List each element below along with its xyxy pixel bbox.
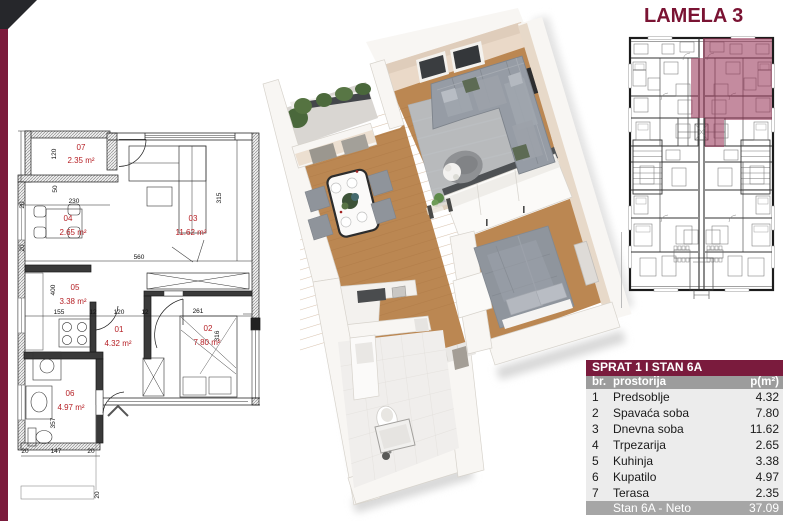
svg-text:01: 01	[115, 325, 124, 334]
svg-text:7.80 m²: 7.80 m²	[193, 338, 220, 347]
svg-text:12: 12	[141, 309, 149, 316]
svg-text:261: 261	[193, 308, 204, 315]
svg-text:2.35 m²: 2.35 m²	[67, 156, 94, 165]
svg-text:2.65 m²: 2.65 m²	[59, 228, 86, 237]
svg-text:3.38 m²: 3.38 m²	[59, 297, 86, 306]
svg-text:155: 155	[54, 309, 65, 316]
svg-text:230: 230	[69, 198, 80, 205]
svg-text:03: 03	[189, 214, 198, 223]
svg-text:04: 04	[64, 214, 73, 223]
svg-text:02: 02	[204, 324, 213, 333]
svg-text:20: 20	[19, 244, 26, 252]
svg-text:560: 560	[134, 254, 145, 261]
svg-text:120: 120	[114, 309, 125, 316]
svg-text:20: 20	[21, 448, 29, 455]
svg-text:315: 315	[216, 192, 223, 203]
svg-text:400: 400	[50, 284, 57, 295]
svg-text:357: 357	[50, 417, 57, 428]
svg-text:20: 20	[19, 201, 26, 209]
svg-text:4.97 m²: 4.97 m²	[57, 403, 84, 412]
svg-text:50: 50	[52, 185, 59, 193]
svg-text:147: 147	[51, 448, 62, 455]
svg-text:120: 120	[51, 148, 58, 159]
svg-text:06: 06	[66, 389, 75, 398]
svg-text:4.32 m²: 4.32 m²	[104, 339, 131, 348]
svg-text:07: 07	[77, 143, 86, 152]
svg-text:20: 20	[94, 491, 101, 499]
svg-text:20: 20	[87, 448, 95, 455]
svg-text:05: 05	[71, 283, 80, 292]
svg-text:11.62 m²: 11.62 m²	[176, 228, 207, 237]
svg-text:12: 12	[89, 309, 97, 316]
